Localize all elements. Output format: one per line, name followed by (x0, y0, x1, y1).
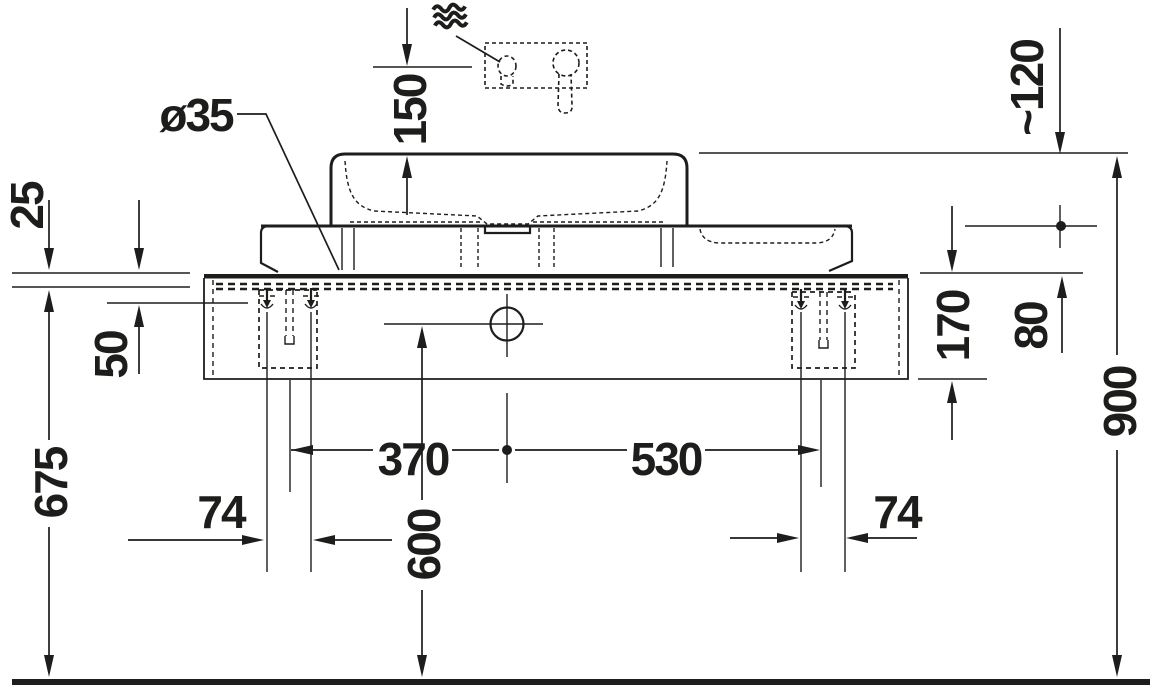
dim-label-530: 530 (631, 433, 702, 485)
dim-label-370: 370 (378, 433, 449, 485)
console-plate-left-edge (261, 226, 278, 272)
fixing-anchor-icons (259, 288, 853, 309)
faucet-leader-line (456, 36, 500, 62)
washbasin-console-elevation-drawing: ø35 370 530 74 74 150 ~120 25 50 170 80 … (0, 0, 1150, 685)
drain-hole (384, 294, 543, 357)
cabinet-top-edge (204, 274, 908, 279)
washbasin-outline (331, 154, 687, 225)
water-flow-icon (433, 3, 467, 28)
dim-label-50: 50 (85, 331, 137, 379)
technical-drawing-page: ø35 370 530 74 74 150 ~120 25 50 170 80 … (0, 0, 1150, 685)
mounting-rail-hidden (216, 284, 893, 289)
tap-hole-leader-line (237, 114, 339, 270)
plate-recess-hidden-edge (700, 229, 835, 243)
faucet-handle-head (553, 50, 579, 76)
dim-label-74-left: 74 (197, 486, 247, 538)
faucet-handle-stem (558, 74, 572, 113)
reference-dot-marker (1056, 221, 1066, 231)
faucet-spout (498, 56, 516, 76)
dim-label-900: 900 (1094, 366, 1146, 437)
cabinet-inner-hidden-edges (213, 280, 899, 377)
console-plate (261, 226, 852, 272)
wall-faucet-icon (485, 43, 587, 113)
right-bracket-hanger (820, 292, 827, 340)
dim-label-675: 675 (25, 446, 77, 518)
console-cabinet (204, 274, 908, 379)
faucet-spout-base (501, 76, 513, 86)
dim-label-80: 80 (1005, 302, 1057, 350)
console-plate-right-edge (829, 226, 852, 271)
anchor-icon (303, 288, 319, 308)
dim-label-120: ~120 (1001, 40, 1053, 136)
basin-inner-contour (345, 161, 667, 224)
right-bracket-hook (819, 340, 828, 348)
dim-label-170: 170 (927, 290, 979, 361)
dim-label-600: 600 (398, 509, 450, 580)
plate-joint-lines (342, 228, 673, 270)
dim-label-tap-hole: ø35 (159, 89, 234, 141)
cabinet-body (204, 278, 908, 379)
center-dot-marker (502, 445, 512, 455)
left-bracket-hanger (286, 290, 293, 336)
floor-line (12, 679, 1150, 685)
dim-label-25: 25 (1, 181, 53, 230)
dim-label-150: 150 (384, 74, 436, 145)
dim-label-74-right: 74 (873, 486, 923, 538)
left-bracket-hook (285, 336, 294, 344)
anchor-icon (259, 288, 275, 308)
